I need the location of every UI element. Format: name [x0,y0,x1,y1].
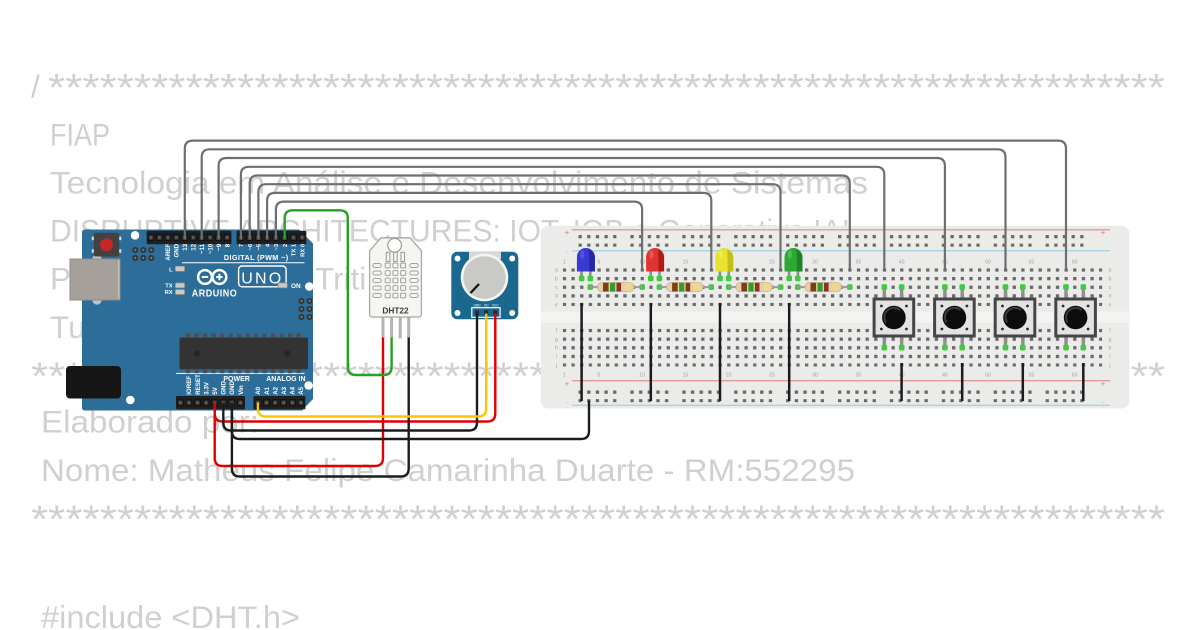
svg-text:e: e [555,302,558,308]
svg-text:A4: A4 [290,386,297,394]
svg-text:Triti: Triti [315,261,366,297]
svg-text:50: 50 [985,372,991,378]
svg-text:RESET: RESET [195,374,202,395]
svg-text:20: 20 [726,372,732,378]
svg-text:45: 45 [942,372,948,378]
svg-text:/: / [31,69,40,105]
svg-text:-: - [1102,246,1105,255]
svg-text:DIGITAL (PWM ~): DIGITAL (PWM ~) [224,253,289,262]
svg-text:15: 15 [683,260,689,266]
svg-text:-: - [566,246,569,255]
svg-text:3.3V: 3.3V [203,381,210,395]
svg-text:RX 0: RX 0 [300,243,306,257]
svg-text:60: 60 [1072,372,1078,378]
svg-text:5: 5 [597,372,600,378]
svg-text:VCC: VCC [492,304,499,308]
svg-text:AREF: AREF [165,244,172,261]
svg-text:1: 1 [563,372,566,378]
svg-text:RX: RX [165,290,173,296]
svg-text:30: 30 [812,260,818,266]
svg-text:L: L [169,267,173,273]
svg-text:50: 50 [985,260,991,266]
svg-text:55: 55 [1029,260,1035,266]
svg-text:e: e [1109,302,1112,308]
svg-text:a: a [555,268,558,274]
svg-text:~10: ~10 [208,243,215,254]
svg-text:A1: A1 [264,386,271,394]
svg-text:A3: A3 [281,386,288,394]
svg-text:d: d [555,294,558,300]
svg-text:#include <DHT.h>: #include <DHT.h> [41,599,300,630]
svg-text:15: 15 [683,372,689,378]
svg-text:5V: 5V [212,386,219,394]
svg-text:Tu: Tu [50,309,86,345]
svg-text:Nome: Matheus Felipe Camarinha: Nome: Matheus Felipe Camarinha Duarte - … [41,452,855,488]
svg-text:******************************: ****************************************… [31,498,1165,541]
svg-text:40: 40 [899,260,905,266]
svg-text:i: i [1109,354,1110,360]
svg-text:P: P [50,261,71,297]
svg-text:POWER: POWER [223,376,249,383]
svg-text:TX 1: TX 1 [292,243,298,256]
svg-text:~3: ~3 [274,243,280,250]
svg-text:-: - [566,398,569,407]
svg-text:FIAP: FIAP [50,117,110,153]
svg-text:d: d [1109,294,1112,300]
svg-text:35: 35 [856,260,862,266]
svg-text:ARDUINO: ARDUINO [192,289,238,300]
svg-text:A2: A2 [272,386,279,394]
svg-text:h: h [555,346,558,352]
svg-text:g: g [555,337,558,343]
svg-text:i: i [556,354,557,360]
svg-text:~9: ~9 [216,243,223,251]
svg-text:5: 5 [597,260,600,266]
svg-text:25: 25 [769,372,775,378]
svg-text:A0: A0 [255,386,262,394]
svg-text:IOREF: IOREF [186,376,193,395]
svg-text:+: + [1101,379,1106,388]
svg-text:8: 8 [224,243,231,247]
svg-text:55: 55 [1029,372,1035,378]
svg-text:~6: ~6 [248,243,254,250]
svg-text:c: c [555,285,558,291]
svg-text:a: a [1109,268,1112,274]
svg-text:13: 13 [182,243,189,250]
svg-text:GND: GND [473,304,481,308]
svg-text:GND: GND [174,243,181,257]
svg-text:60: 60 [1072,260,1078,266]
svg-text:g: g [1109,337,1112,343]
svg-text:35: 35 [856,372,862,378]
svg-text:ANALOG IN: ANALOG IN [266,376,305,383]
svg-text:******************************: ****************************************… [48,67,1165,110]
svg-text:+: + [1101,228,1106,237]
svg-text:j: j [1108,363,1110,369]
svg-text:h: h [1109,346,1112,352]
svg-text:12: 12 [191,243,198,250]
svg-text:VO: VO [484,304,489,308]
svg-text:b: b [555,276,558,282]
svg-text:10: 10 [639,372,645,378]
svg-text:Tecnologia em Análise e Desenv: Tecnologia em Análise e Desenvolvimento … [50,165,868,201]
svg-text:A5: A5 [298,386,305,394]
svg-text:TX: TX [165,284,173,290]
svg-text:25: 25 [769,260,775,266]
svg-text:+: + [565,228,570,237]
svg-text:j: j [555,363,557,369]
svg-text:-: - [1102,398,1105,407]
svg-text:ON: ON [291,283,301,290]
svg-text:b: b [1109,276,1112,282]
svg-text:~11: ~11 [199,243,206,254]
svg-text:1: 1 [563,260,566,266]
svg-text:Vin: Vin [238,385,245,395]
svg-text:~5: ~5 [257,243,263,250]
svg-text:c: c [1109,285,1112,291]
svg-text:30: 30 [812,372,818,378]
svg-text:DHT22: DHT22 [382,306,409,316]
svg-text:UNO: UNO [241,270,283,287]
svg-text:+: + [565,379,570,388]
